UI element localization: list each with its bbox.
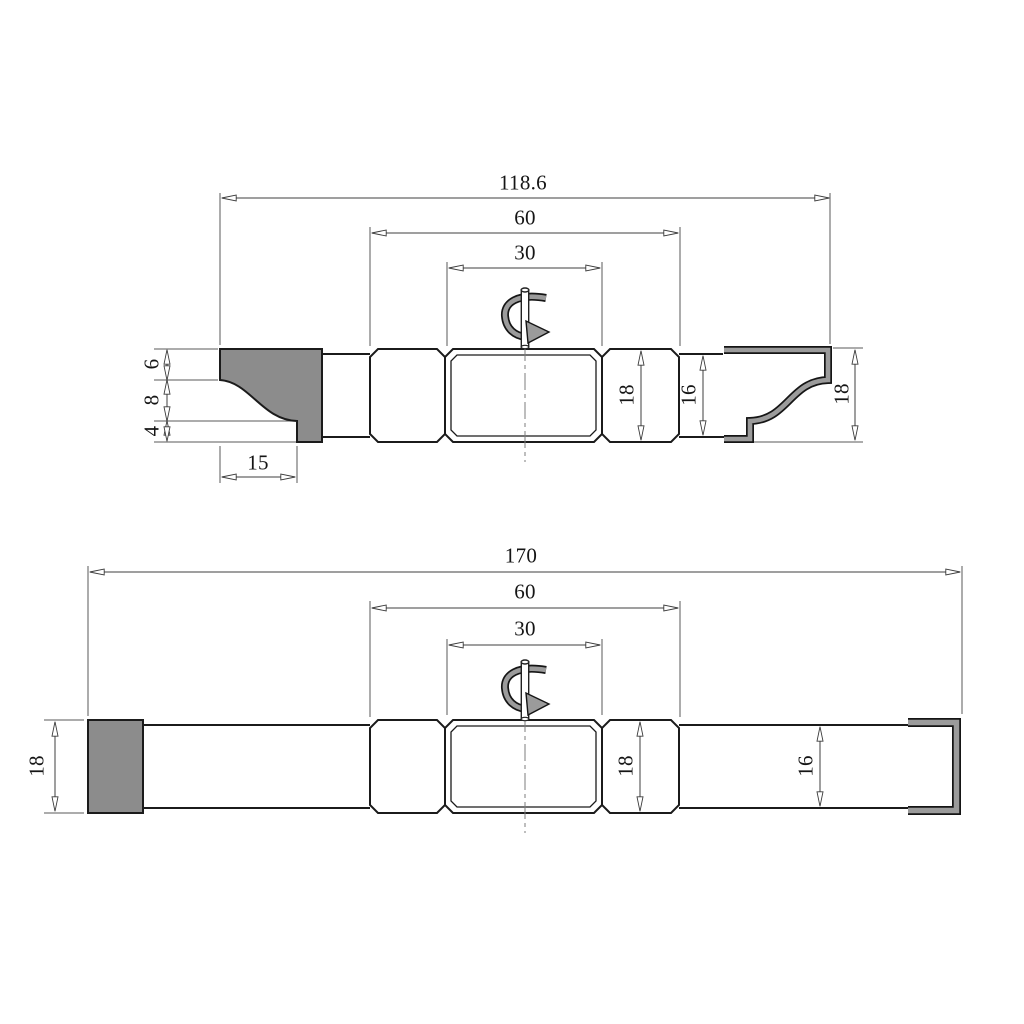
bottom-view-part-outline	[88, 715, 957, 833]
bottom-view	[44, 566, 962, 833]
dim-label-top-center-width: 30	[514, 241, 536, 266]
dim-label-top-overall-length: 118.6	[499, 171, 547, 196]
top-view-extension-lines	[154, 193, 863, 483]
dim-label-bottom-hub-span: 60	[514, 580, 536, 605]
dim-label-bottom-shaft-height: 16	[794, 755, 819, 777]
center-hub-inner	[451, 726, 596, 807]
center-hub-outer	[445, 349, 602, 442]
dim-label-bottom-center-width: 30	[514, 617, 536, 642]
dim-label-bottom-hub-height: 18	[614, 755, 639, 777]
left-knife-block	[88, 720, 143, 813]
moulding-knife-profile	[220, 349, 322, 442]
dim-label-top-hub-span: 60	[514, 206, 536, 231]
top-view	[154, 193, 863, 483]
dim-label-counter-profile-height: 18	[830, 383, 855, 405]
top-view-part-outline	[220, 344, 828, 462]
dim-label-top-hub-height: 18	[615, 384, 640, 406]
dim-label-knife-seg-middle: 8	[140, 395, 165, 406]
dim-label-knife-width: 15	[247, 451, 269, 476]
right-bracket-profile	[908, 723, 957, 811]
dim-label-bottom-overall-length: 170	[505, 544, 537, 569]
center-hub-outer	[445, 720, 602, 813]
dim-label-knife-seg-bottom: 4	[140, 426, 165, 437]
dim-label-knife-seg-top: 6	[140, 359, 165, 370]
rotation-arrow-icon	[505, 288, 549, 349]
counter-knife-profile	[724, 350, 828, 439]
dim-label-top-shaft-height: 16	[677, 384, 702, 406]
linework-svg	[0, 0, 1024, 1024]
drawing-canvas: 118.6 60 30 6 8 4 15 18 16 18 170 60 30 …	[0, 0, 1024, 1024]
dim-label-block-height: 18	[25, 755, 50, 777]
center-hub-inner	[451, 355, 596, 436]
left-hub	[370, 349, 445, 442]
rotation-arrow-icon	[505, 660, 549, 721]
left-hub	[370, 720, 445, 813]
